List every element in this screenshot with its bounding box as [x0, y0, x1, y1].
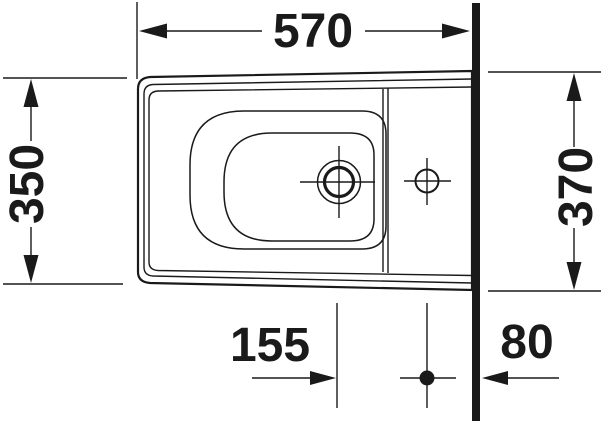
- bidet-body: [138, 71, 472, 290]
- arrowhead-up: [24, 79, 39, 107]
- arrowhead-left: [139, 24, 167, 39]
- arrowhead-right: [442, 24, 470, 39]
- dim-370-label: 370: [550, 147, 603, 227]
- dim-80-label: 80: [500, 316, 553, 369]
- wall-line: [472, 3, 480, 421]
- dim-155-label: 155: [230, 319, 310, 372]
- center-marker-dot: [420, 371, 435, 386]
- arrowhead-right: [310, 371, 336, 385]
- bidet-technical-drawing: 570 350 370 155 80: [0, 0, 605, 422]
- dimension-overall-length: 570: [137, 2, 470, 79]
- dimension-drain-offset: 155: [230, 303, 337, 408]
- arrowhead-up: [567, 73, 582, 101]
- arrowhead-down: [24, 255, 39, 283]
- dimension-wall-offset: 80: [482, 316, 559, 385]
- dimension-wall-width: 370: [488, 72, 603, 291]
- arrowhead-down: [567, 262, 582, 290]
- tap-axis-center-marker: [400, 303, 456, 408]
- dim-570-label: 570: [273, 5, 353, 58]
- dimension-drawing-canvas: 570 350 370 155 80: [0, 0, 605, 422]
- dim-350-label: 350: [1, 144, 54, 224]
- dimension-front-width: 350: [1, 78, 127, 284]
- arrowhead-left: [482, 371, 508, 385]
